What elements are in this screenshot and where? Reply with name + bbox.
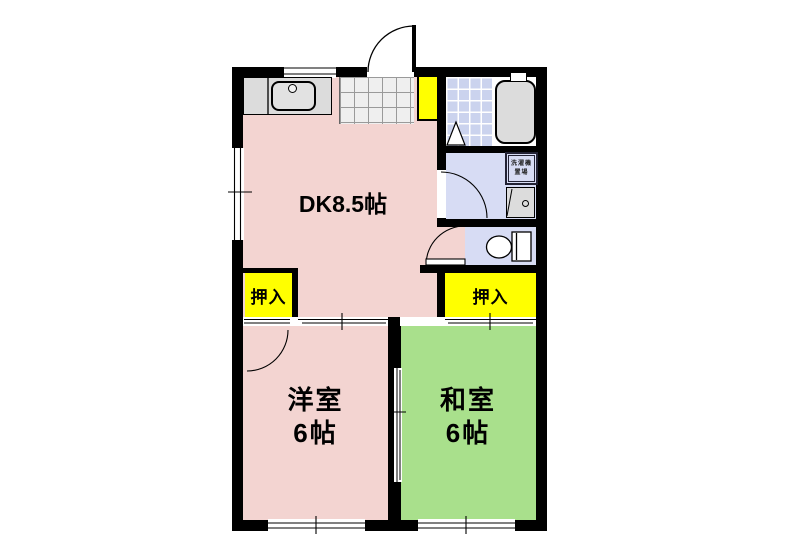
dk-room-label: DK8.5帖 (278, 190, 408, 219)
window-bottom-left-opening (268, 519, 365, 532)
sink-faucet-icon (288, 84, 297, 93)
bathtub-faucet-icon (510, 72, 527, 82)
closet-right-fusuma-lines (445, 320, 536, 324)
window-top-opening (284, 63, 336, 78)
window-left-opening (231, 148, 244, 240)
wall (395, 326, 401, 368)
washing-machine-space: 洗濯機 置場 (505, 152, 538, 185)
floorplan-canvas: 洗濯機 置場 押入 押入 (0, 0, 785, 548)
toilet-room-floor (465, 227, 536, 265)
wall (437, 273, 445, 317)
dk-western-sliding-lines (298, 320, 388, 324)
wall (388, 317, 400, 326)
washing-machine-label-box: 洗濯機 置場 (508, 155, 535, 182)
bathtub-icon (495, 80, 536, 144)
japanese-room-name: 和室 (400, 384, 536, 417)
shoe-cabinet (417, 75, 439, 121)
window-bottom-right-opening (418, 519, 515, 532)
wall (292, 268, 298, 317)
washer-label-line2: 置場 (514, 169, 528, 177)
washbasin-icon (506, 187, 535, 218)
closet-left: 押入 (245, 273, 292, 317)
western-room-size: 6帖 (243, 417, 388, 450)
wall (536, 67, 547, 531)
closet-left-fusuma-lines (244, 320, 290, 324)
wall (395, 482, 401, 520)
western-room-label: 洋室 6帖 (243, 384, 388, 449)
washbasin-drain-icon (522, 200, 529, 207)
washer-label-line1: 洗濯機 (511, 160, 532, 168)
wall (437, 219, 536, 227)
closet-right-label: 押入 (473, 283, 509, 308)
entrance-door-arc (368, 26, 414, 72)
wall (420, 265, 536, 273)
wall (232, 67, 243, 531)
closet-right: 押入 (445, 273, 536, 317)
dk-hall-floor (437, 227, 465, 265)
japanese-room-size: 6帖 (400, 417, 536, 450)
genkan-tile-floor (339, 77, 414, 124)
western-room-name: 洋室 (243, 384, 388, 417)
bathroom-tile-floor (446, 77, 492, 146)
japanese-room-label: 和室 6帖 (400, 384, 536, 449)
closet-left-label: 押入 (251, 283, 287, 308)
